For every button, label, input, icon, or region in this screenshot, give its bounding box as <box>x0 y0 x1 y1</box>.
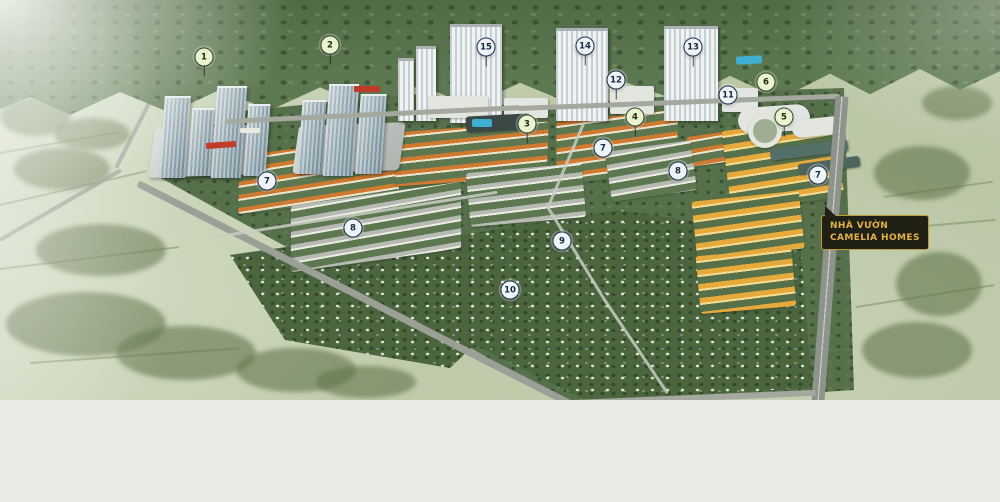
masterplan-map: 123456777889101112131415 NHÀ VƯỜN CAMELI… <box>0 0 1000 400</box>
map-marker-7: 7 <box>594 139 613 158</box>
tree-grove <box>116 326 256 380</box>
map-marker-9: 9 <box>553 232 572 251</box>
map-marker-14: 14 <box>576 37 595 56</box>
swimming-pool <box>472 119 492 127</box>
tree-grove <box>922 86 992 120</box>
map-marker-11: 11 <box>719 86 738 105</box>
tree-grove <box>896 252 982 316</box>
map-marker-7: 7 <box>809 166 828 185</box>
map-marker-7: 7 <box>258 172 277 191</box>
map-marker-3: 3 <box>518 115 537 134</box>
tree-grove <box>36 224 166 276</box>
legend: 1BỆNH VIỆN ĐA KHOA QUỐC TẾ2TRUNG TÂM THƯ… <box>0 400 1000 502</box>
map-marker-6: 6 <box>757 73 776 92</box>
tree-grove <box>862 322 972 378</box>
camelia-homes-callout: NHÀ VƯỜN CAMELIA HOMES <box>821 215 929 250</box>
map-marker-2: 2 <box>321 36 340 55</box>
tree-grove <box>316 366 416 398</box>
map-marker-15: 15 <box>477 38 496 57</box>
masterplan-image: 123456777889101112131415 NHÀ VƯỜN CAMELI… <box>0 0 1000 502</box>
tree-grove <box>874 146 970 200</box>
tree-grove <box>14 148 110 190</box>
map-marker-1: 1 <box>195 48 214 67</box>
map-marker-8: 8 <box>669 162 688 181</box>
map-marker-8: 8 <box>344 219 363 238</box>
billboard <box>354 86 380 92</box>
callout-line2: CAMELIA HOMES <box>830 233 920 245</box>
map-marker-5: 5 <box>775 108 794 127</box>
map-marker-13: 13 <box>684 38 703 57</box>
callout-line1: NHÀ VƯỜN <box>830 221 920 233</box>
map-marker-4: 4 <box>626 108 645 127</box>
map-marker-12: 12 <box>607 71 626 90</box>
swimming-pool <box>736 55 762 64</box>
billboard <box>240 128 260 133</box>
map-marker-10: 10 <box>501 281 520 300</box>
camelia-homes-block <box>696 248 797 314</box>
